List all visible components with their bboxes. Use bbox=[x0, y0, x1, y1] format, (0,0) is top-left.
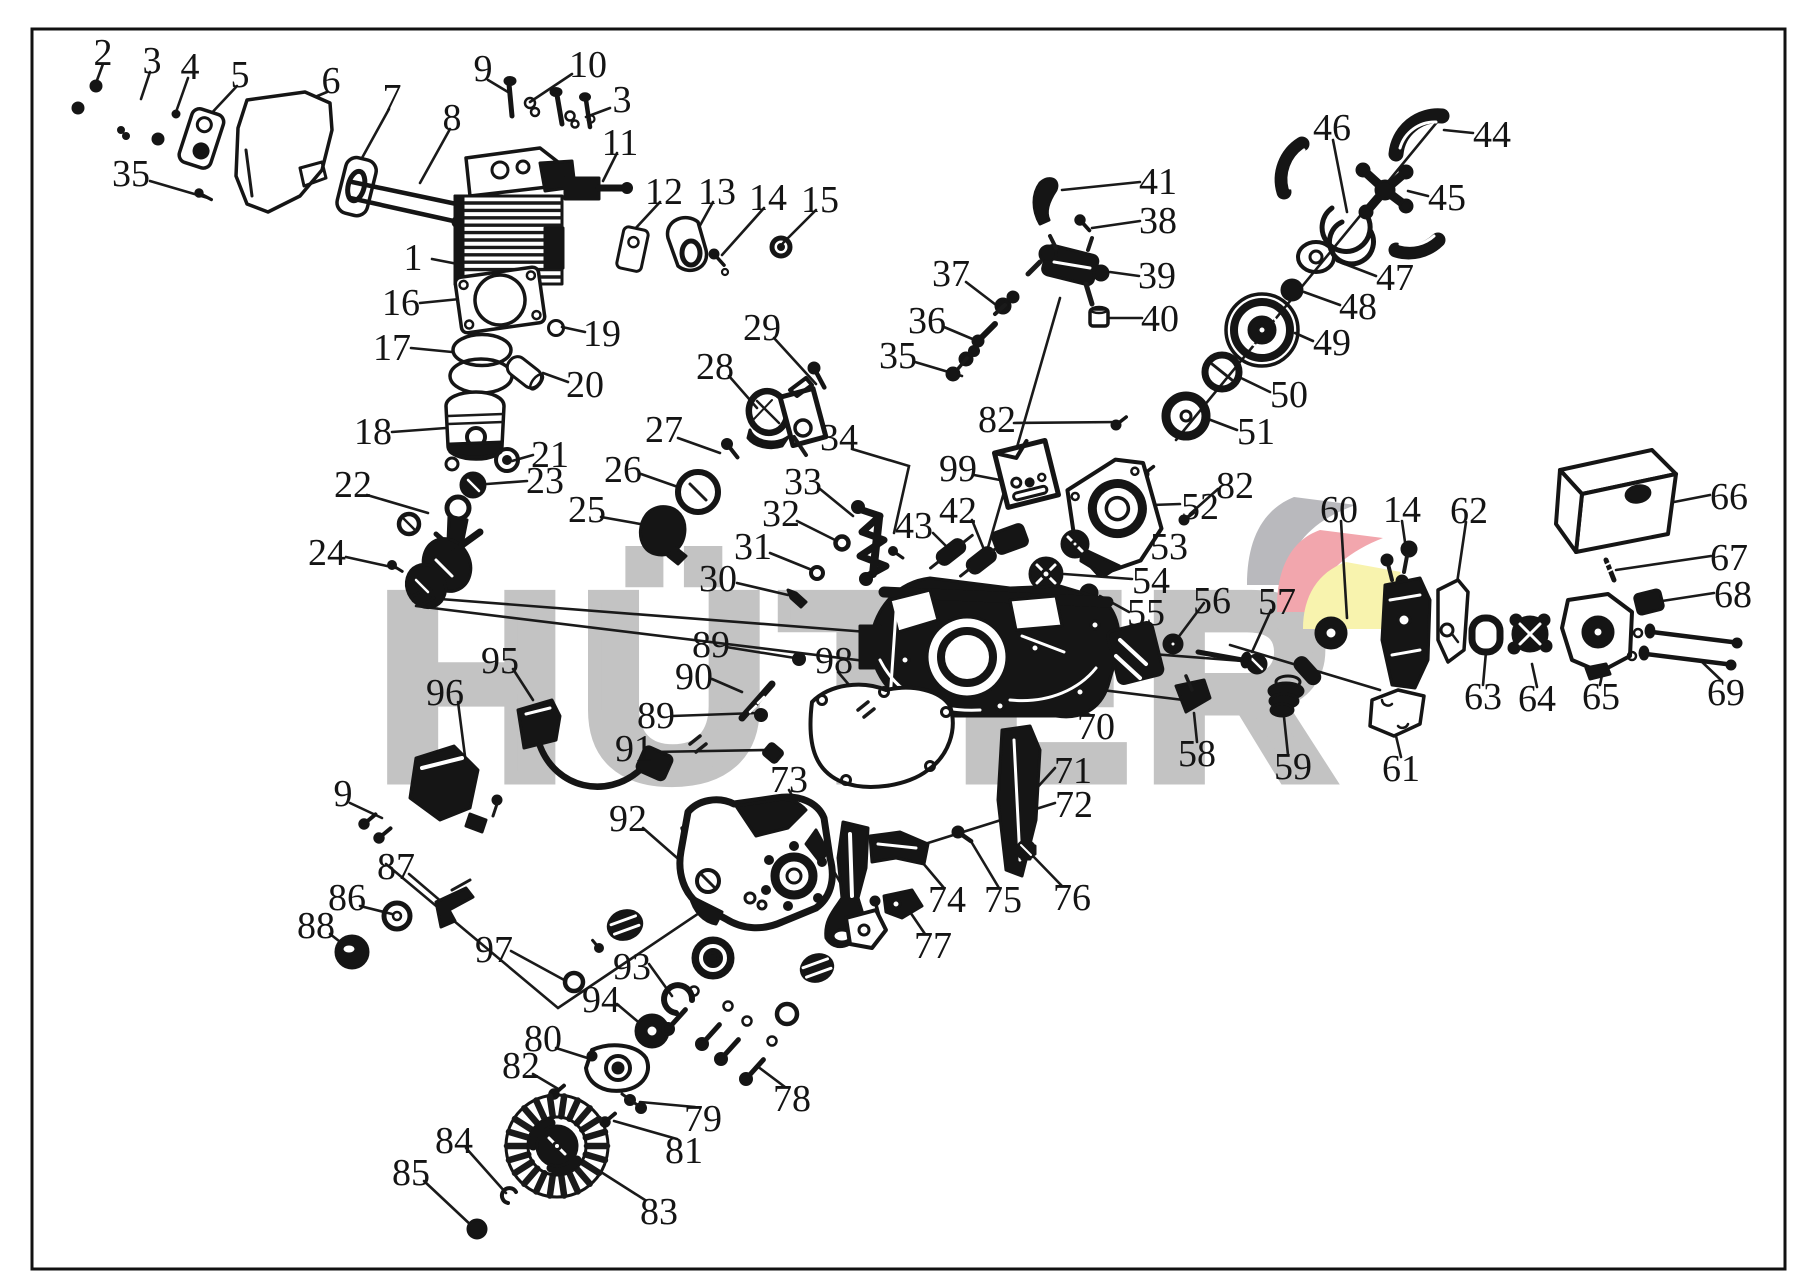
svg-text:22: 22 bbox=[334, 464, 372, 506]
svg-text:10: 10 bbox=[569, 44, 607, 86]
svg-text:26: 26 bbox=[604, 449, 642, 491]
svg-text:14: 14 bbox=[749, 177, 787, 219]
svg-text:4: 4 bbox=[181, 46, 200, 88]
svg-text:68: 68 bbox=[1714, 574, 1752, 616]
svg-text:77: 77 bbox=[914, 925, 952, 967]
svg-text:90: 90 bbox=[675, 656, 713, 698]
svg-text:73: 73 bbox=[770, 759, 808, 801]
svg-text:50: 50 bbox=[1270, 374, 1308, 416]
svg-text:44: 44 bbox=[1473, 114, 1511, 156]
svg-text:99: 99 bbox=[939, 448, 977, 490]
svg-text:34: 34 bbox=[820, 417, 858, 459]
svg-text:38: 38 bbox=[1139, 200, 1177, 242]
svg-text:11: 11 bbox=[602, 122, 639, 164]
svg-text:62: 62 bbox=[1450, 490, 1488, 532]
svg-text:37: 37 bbox=[932, 253, 970, 295]
svg-text:91: 91 bbox=[615, 728, 653, 770]
svg-text:15: 15 bbox=[801, 179, 839, 221]
svg-text:16: 16 bbox=[382, 282, 420, 324]
svg-text:42: 42 bbox=[939, 490, 977, 532]
svg-text:29: 29 bbox=[743, 307, 781, 349]
svg-text:1: 1 bbox=[404, 237, 423, 279]
svg-text:6: 6 bbox=[322, 60, 341, 102]
svg-text:43: 43 bbox=[895, 505, 933, 547]
svg-text:41: 41 bbox=[1139, 161, 1177, 203]
svg-text:45: 45 bbox=[1428, 177, 1466, 219]
svg-text:69: 69 bbox=[1707, 672, 1745, 714]
svg-text:25: 25 bbox=[568, 489, 606, 531]
svg-text:88: 88 bbox=[297, 905, 335, 947]
svg-text:5: 5 bbox=[231, 54, 250, 96]
svg-text:82: 82 bbox=[502, 1045, 540, 1087]
svg-text:83: 83 bbox=[640, 1191, 678, 1233]
svg-text:67: 67 bbox=[1710, 537, 1748, 579]
svg-text:46: 46 bbox=[1313, 107, 1351, 149]
svg-text:96: 96 bbox=[426, 672, 464, 714]
svg-text:28: 28 bbox=[696, 346, 734, 388]
svg-text:9: 9 bbox=[334, 773, 353, 815]
svg-text:19: 19 bbox=[583, 313, 621, 355]
svg-text:49: 49 bbox=[1313, 322, 1351, 364]
svg-text:74: 74 bbox=[928, 879, 966, 921]
svg-text:85: 85 bbox=[392, 1152, 430, 1194]
svg-text:55: 55 bbox=[1127, 592, 1165, 634]
svg-text:78: 78 bbox=[773, 1078, 811, 1120]
svg-text:66: 66 bbox=[1710, 476, 1748, 518]
svg-text:84: 84 bbox=[435, 1120, 473, 1162]
svg-text:23: 23 bbox=[526, 460, 564, 502]
svg-text:3: 3 bbox=[613, 79, 632, 121]
svg-text:65: 65 bbox=[1582, 676, 1620, 718]
svg-text:30: 30 bbox=[699, 558, 737, 600]
svg-text:70: 70 bbox=[1077, 706, 1115, 748]
svg-text:61: 61 bbox=[1382, 748, 1420, 790]
svg-text:82: 82 bbox=[978, 399, 1016, 441]
svg-text:81: 81 bbox=[665, 1130, 703, 1172]
svg-text:2: 2 bbox=[94, 32, 113, 74]
svg-text:94: 94 bbox=[582, 979, 620, 1021]
svg-text:58: 58 bbox=[1178, 733, 1216, 775]
svg-text:97: 97 bbox=[475, 929, 513, 971]
svg-text:9: 9 bbox=[474, 48, 493, 90]
svg-text:59: 59 bbox=[1274, 746, 1312, 788]
svg-text:13: 13 bbox=[698, 171, 736, 213]
svg-text:95: 95 bbox=[481, 640, 519, 682]
svg-text:76: 76 bbox=[1053, 877, 1091, 919]
svg-text:63: 63 bbox=[1464, 676, 1502, 718]
svg-text:7: 7 bbox=[383, 77, 402, 119]
svg-text:75: 75 bbox=[984, 879, 1022, 921]
svg-text:82: 82 bbox=[1216, 465, 1254, 507]
svg-text:39: 39 bbox=[1138, 255, 1176, 297]
svg-text:60: 60 bbox=[1320, 489, 1358, 531]
svg-text:98: 98 bbox=[815, 640, 853, 682]
svg-text:52: 52 bbox=[1181, 486, 1219, 528]
svg-text:57: 57 bbox=[1258, 581, 1296, 623]
svg-text:87: 87 bbox=[377, 846, 415, 888]
svg-text:33: 33 bbox=[784, 461, 822, 503]
svg-text:51: 51 bbox=[1237, 411, 1275, 453]
svg-text:3: 3 bbox=[143, 40, 162, 82]
svg-text:8: 8 bbox=[443, 97, 462, 139]
svg-text:12: 12 bbox=[645, 171, 683, 213]
svg-text:27: 27 bbox=[645, 409, 683, 451]
svg-text:36: 36 bbox=[908, 300, 946, 342]
svg-text:20: 20 bbox=[566, 364, 604, 406]
svg-text:24: 24 bbox=[308, 532, 346, 574]
svg-text:40: 40 bbox=[1141, 298, 1179, 340]
svg-text:14: 14 bbox=[1383, 489, 1421, 531]
svg-text:18: 18 bbox=[354, 411, 392, 453]
svg-text:72: 72 bbox=[1055, 784, 1093, 826]
svg-text:47: 47 bbox=[1376, 257, 1414, 299]
svg-text:56: 56 bbox=[1193, 580, 1231, 622]
svg-text:35: 35 bbox=[112, 153, 150, 195]
svg-text:92: 92 bbox=[609, 798, 647, 840]
svg-text:64: 64 bbox=[1518, 678, 1556, 720]
svg-text:17: 17 bbox=[373, 327, 411, 369]
